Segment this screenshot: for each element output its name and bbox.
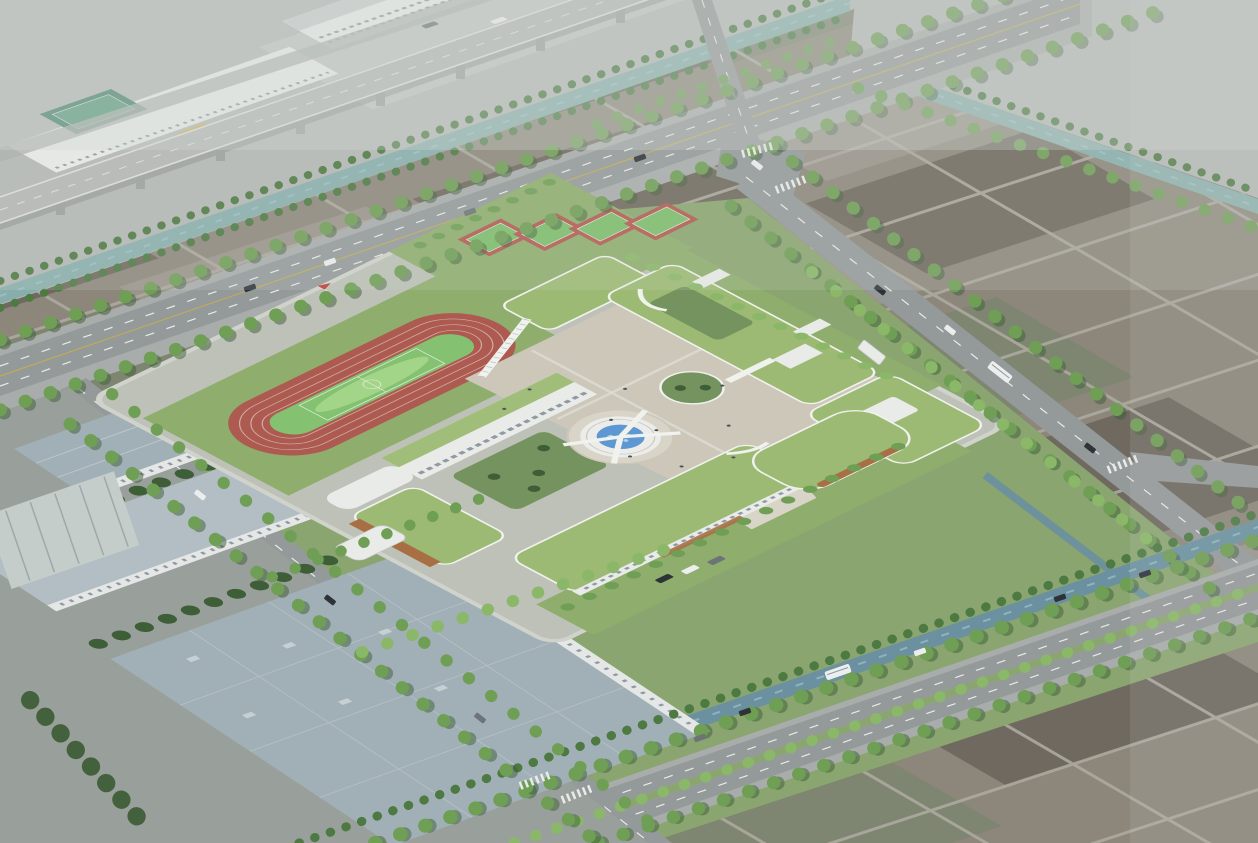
aerial-render-stage (0, 0, 1258, 843)
haze-overlay-right (1130, 0, 1258, 843)
campus-aerial-rendering (0, 0, 1258, 843)
haze-overlay-top (0, 0, 1258, 150)
